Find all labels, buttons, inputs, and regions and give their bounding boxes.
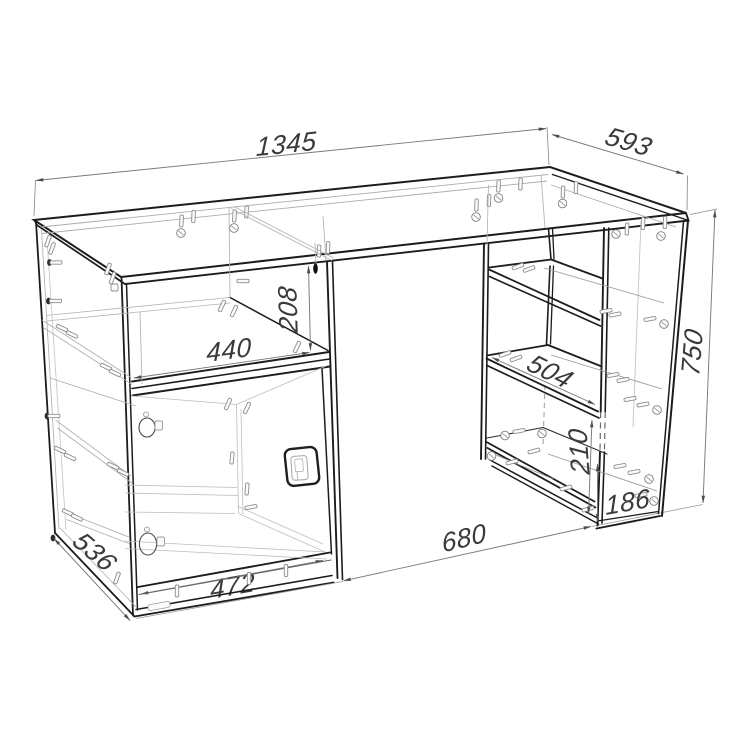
svg-text:504: 504 [521, 349, 579, 394]
svg-text:208: 208 [272, 285, 304, 335]
svg-text:186: 186 [605, 483, 651, 521]
svg-text:593: 593 [601, 122, 657, 162]
svg-text:1345: 1345 [255, 126, 317, 163]
svg-text:440: 440 [206, 332, 251, 369]
svg-text:750: 750 [675, 326, 709, 378]
svg-text:210: 210 [562, 428, 595, 477]
svg-text:680: 680 [440, 517, 488, 558]
svg-text:536: 536 [66, 527, 124, 577]
